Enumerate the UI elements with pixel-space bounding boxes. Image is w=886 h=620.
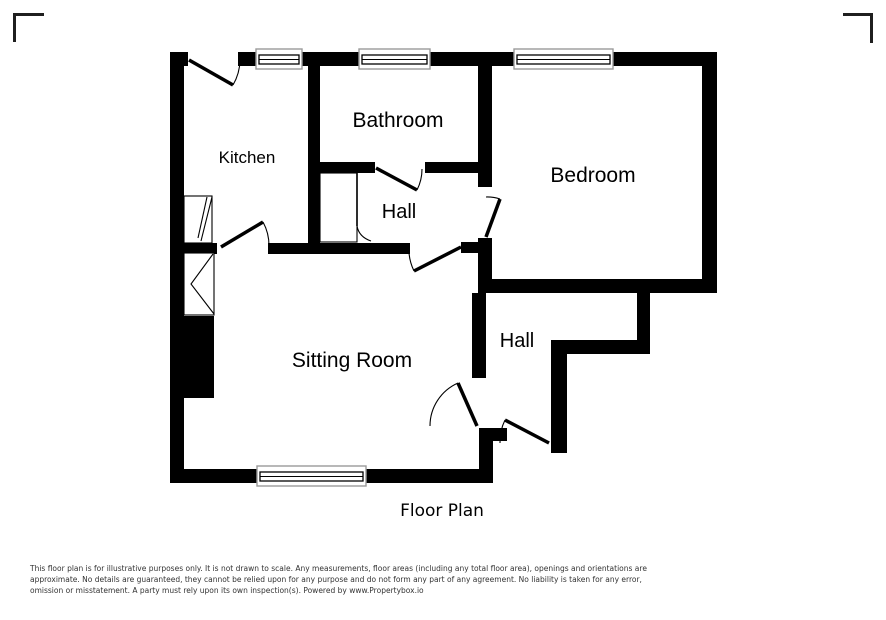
room-labels: Kitchen Bathroom Bedroom Hall Sitting Ro… [219,109,636,372]
wall-top-2 [238,52,258,66]
wall-right [702,52,717,293]
wall-bottom-2 [363,469,493,483]
wall-top-4 [427,52,517,66]
bedroom-window [514,49,613,69]
corner-marks [15,15,872,44]
disclaimer-line-2: approximate. No details are guaranteed, … [30,575,670,586]
wall-entrance-stub-h [479,428,507,441]
entrance-door [500,420,549,443]
disclaimer-line-3: omission or misstatement. A party must r… [30,586,670,597]
sitting-room-window [257,466,366,486]
top-left-corner-mark [15,15,45,43]
top-right-corner-mark [843,15,872,44]
wall-bathroom-bottom-1 [320,162,375,173]
chimney-breast [184,316,214,398]
wall-kitchen-sitting-1 [170,243,217,254]
wall-bathroom-bottom-2 [425,162,478,173]
hall-lower-label: Hall [500,330,534,352]
wall-sitting-hall [472,293,486,378]
hall-sitting-door [409,247,461,271]
wall-bathroom-bedroom [478,52,492,187]
sitting-lower-hall-door [430,383,477,426]
wall-step-horizontal [553,340,650,354]
wall-bedroom-door-stub [478,238,492,279]
bathroom-label: Bathroom [352,109,443,132]
kitchen-label: Kitchen [219,148,276,167]
sitting-room-cupboard [184,253,214,315]
wall-top-3 [298,52,362,66]
hall-upper-label: Hall [382,201,416,223]
wall-kitchen-bathroom [308,52,320,253]
kitchen-entry-door [189,60,240,85]
bedroom-door [486,197,500,237]
floor-plan-caption: Floor Plan [400,501,484,521]
hall-cupboard [320,173,371,242]
kitchen-window [256,49,302,69]
wall-hall-stub [461,242,478,253]
floor-plan-drawing: Kitchen Bathroom Bedroom Hall Sitting Ro… [0,0,886,620]
kitchen-sitting-door [221,222,269,247]
wall-bottom-1 [170,469,260,483]
sitting-room-label: Sitting Room [292,349,412,372]
bathroom-window [359,49,430,69]
kitchen-cupboard [184,196,212,243]
disclaimer: This floor plan is for illustrative purp… [30,564,670,596]
floor-plan-page: Kitchen Bathroom Bedroom Hall Sitting Ro… [0,0,886,620]
wall-kitchen-sitting-2 [268,243,410,254]
bathroom-door [376,168,422,190]
bedroom-label: Bedroom [550,164,635,187]
wall-top-5 [610,52,717,66]
wall-bedroom-bottom [478,279,717,293]
wall-hall-right [551,340,567,453]
disclaimer-line-1: This floor plan is for illustrative purp… [30,564,670,575]
wall-left [170,52,184,483]
